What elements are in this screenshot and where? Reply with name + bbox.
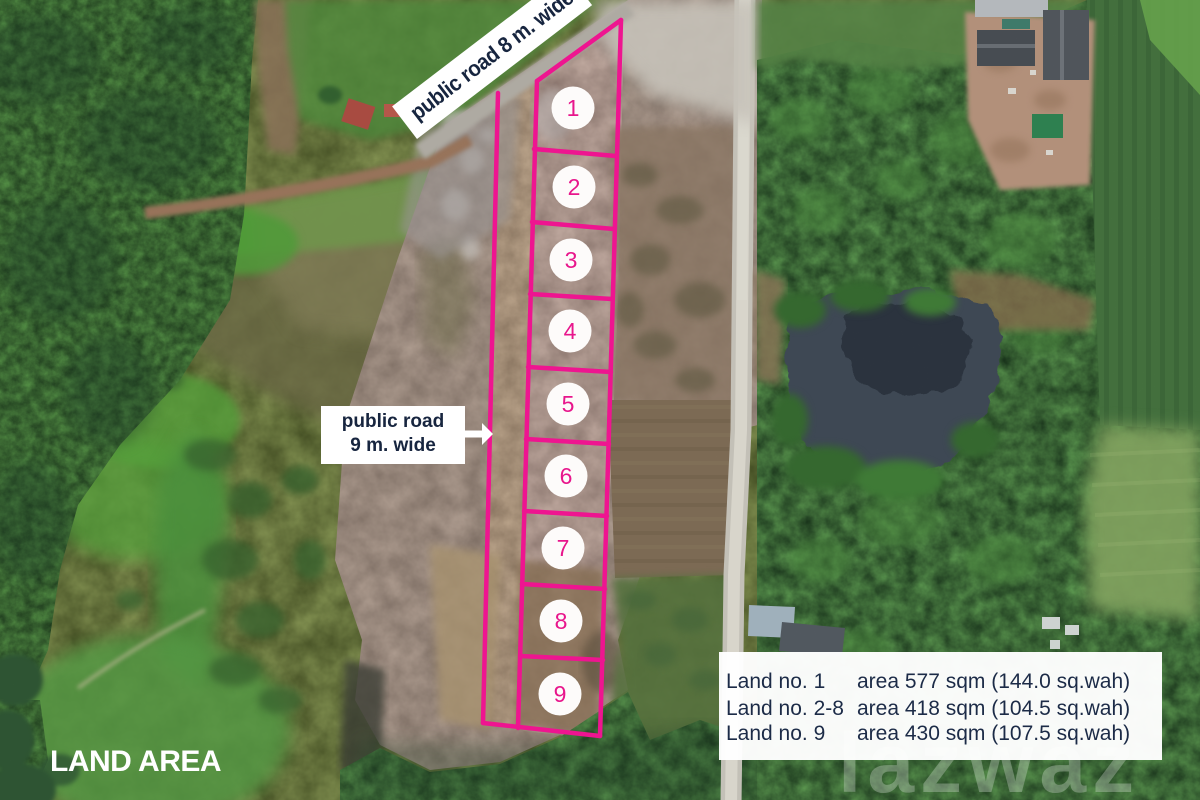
svg-text:7: 7 [557, 535, 570, 561]
svg-text:9: 9 [554, 681, 567, 707]
svg-text:8: 8 [555, 608, 568, 634]
svg-text:4: 4 [564, 318, 577, 344]
svg-text:3: 3 [565, 247, 578, 273]
svg-text:2: 2 [568, 174, 581, 200]
svg-text:6: 6 [560, 463, 573, 489]
svg-text:1: 1 [567, 95, 580, 121]
svg-text:5: 5 [562, 391, 575, 417]
